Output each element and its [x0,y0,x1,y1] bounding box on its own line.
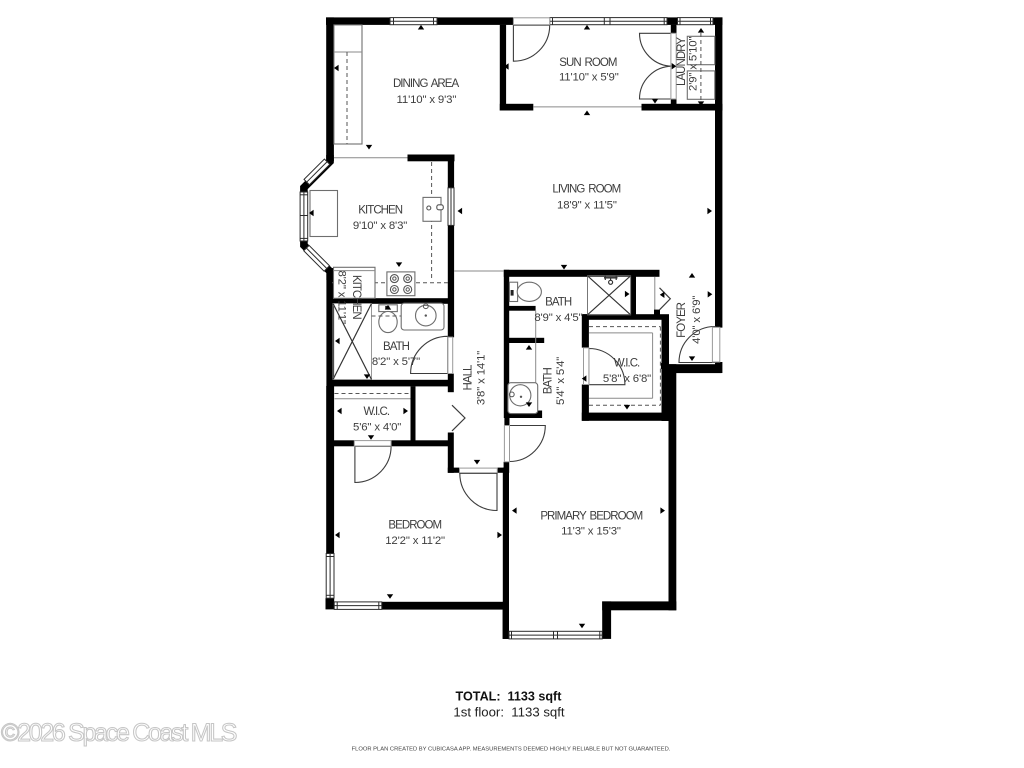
svg-text:8'9" x 4'5": 8'9" x 4'5" [534,312,582,324]
svg-text:11'3" x 15'3": 11'3" x 15'3" [561,526,621,538]
svg-text:BATH: BATH [542,368,554,395]
svg-text:TOTAL: 1133 sqft: TOTAL: 1133 sqft [456,690,563,704]
svg-text:SUN ROOM: SUN ROOM [559,57,617,69]
svg-text:5'6" x 4'0": 5'6" x 4'0" [353,421,401,433]
svg-text:HALL: HALL [462,364,474,391]
svg-text:W.I.C.: W.I.C. [614,358,640,370]
svg-text:BATH: BATH [545,296,572,308]
svg-text:12'2" x 11'2": 12'2" x 11'2" [385,535,445,547]
svg-text:©2026 Space Coast MLS: ©2026 Space Coast MLS [1,719,237,747]
svg-text:2'9" x 5'10": 2'9" x 5'10" [687,37,699,91]
svg-text:BATH: BATH [383,341,410,353]
svg-text:LIVING ROOM: LIVING ROOM [552,184,620,196]
svg-text:18'9" x 11'5": 18'9" x 11'5" [557,199,617,211]
svg-text:BEDROOM: BEDROOM [388,519,441,531]
svg-text:DINING AREA: DINING AREA [393,78,460,90]
svg-text:KITCHEN: KITCHEN [350,275,362,319]
svg-text:5'4" x 5'4": 5'4" x 5'4" [555,357,567,405]
svg-text:9'10" x 8'3": 9'10" x 8'3" [353,220,407,232]
svg-text:PRIMARY BEDROOM: PRIMARY BEDROOM [540,510,642,522]
svg-text:11'10" x 9'3": 11'10" x 9'3" [397,94,457,106]
svg-text:W.I.C.: W.I.C. [363,406,389,418]
svg-text:8'2" x 11'1": 8'2" x 11'1" [336,270,348,324]
svg-text:8'2" x 5'7": 8'2" x 5'7" [372,356,420,368]
svg-text:4'0" x 6'9": 4'0" x 6'9" [691,296,703,344]
svg-text:FLOOR PLAN CREATED BY CUBICASA: FLOOR PLAN CREATED BY CUBICASA APP. MEAS… [352,746,671,752]
svg-text:FOYER: FOYER [676,302,688,338]
svg-text:3'8" x 14'1": 3'8" x 14'1" [476,351,488,405]
svg-text:KITCHEN: KITCHEN [358,204,402,216]
svg-text:11'10" x 5'9": 11'10" x 5'9" [559,71,619,83]
svg-text:1st floor: 1133 sqft: 1st floor: 1133 sqft [453,705,565,720]
svg-text:5'8" x 6'8": 5'8" x 6'8" [603,373,651,385]
